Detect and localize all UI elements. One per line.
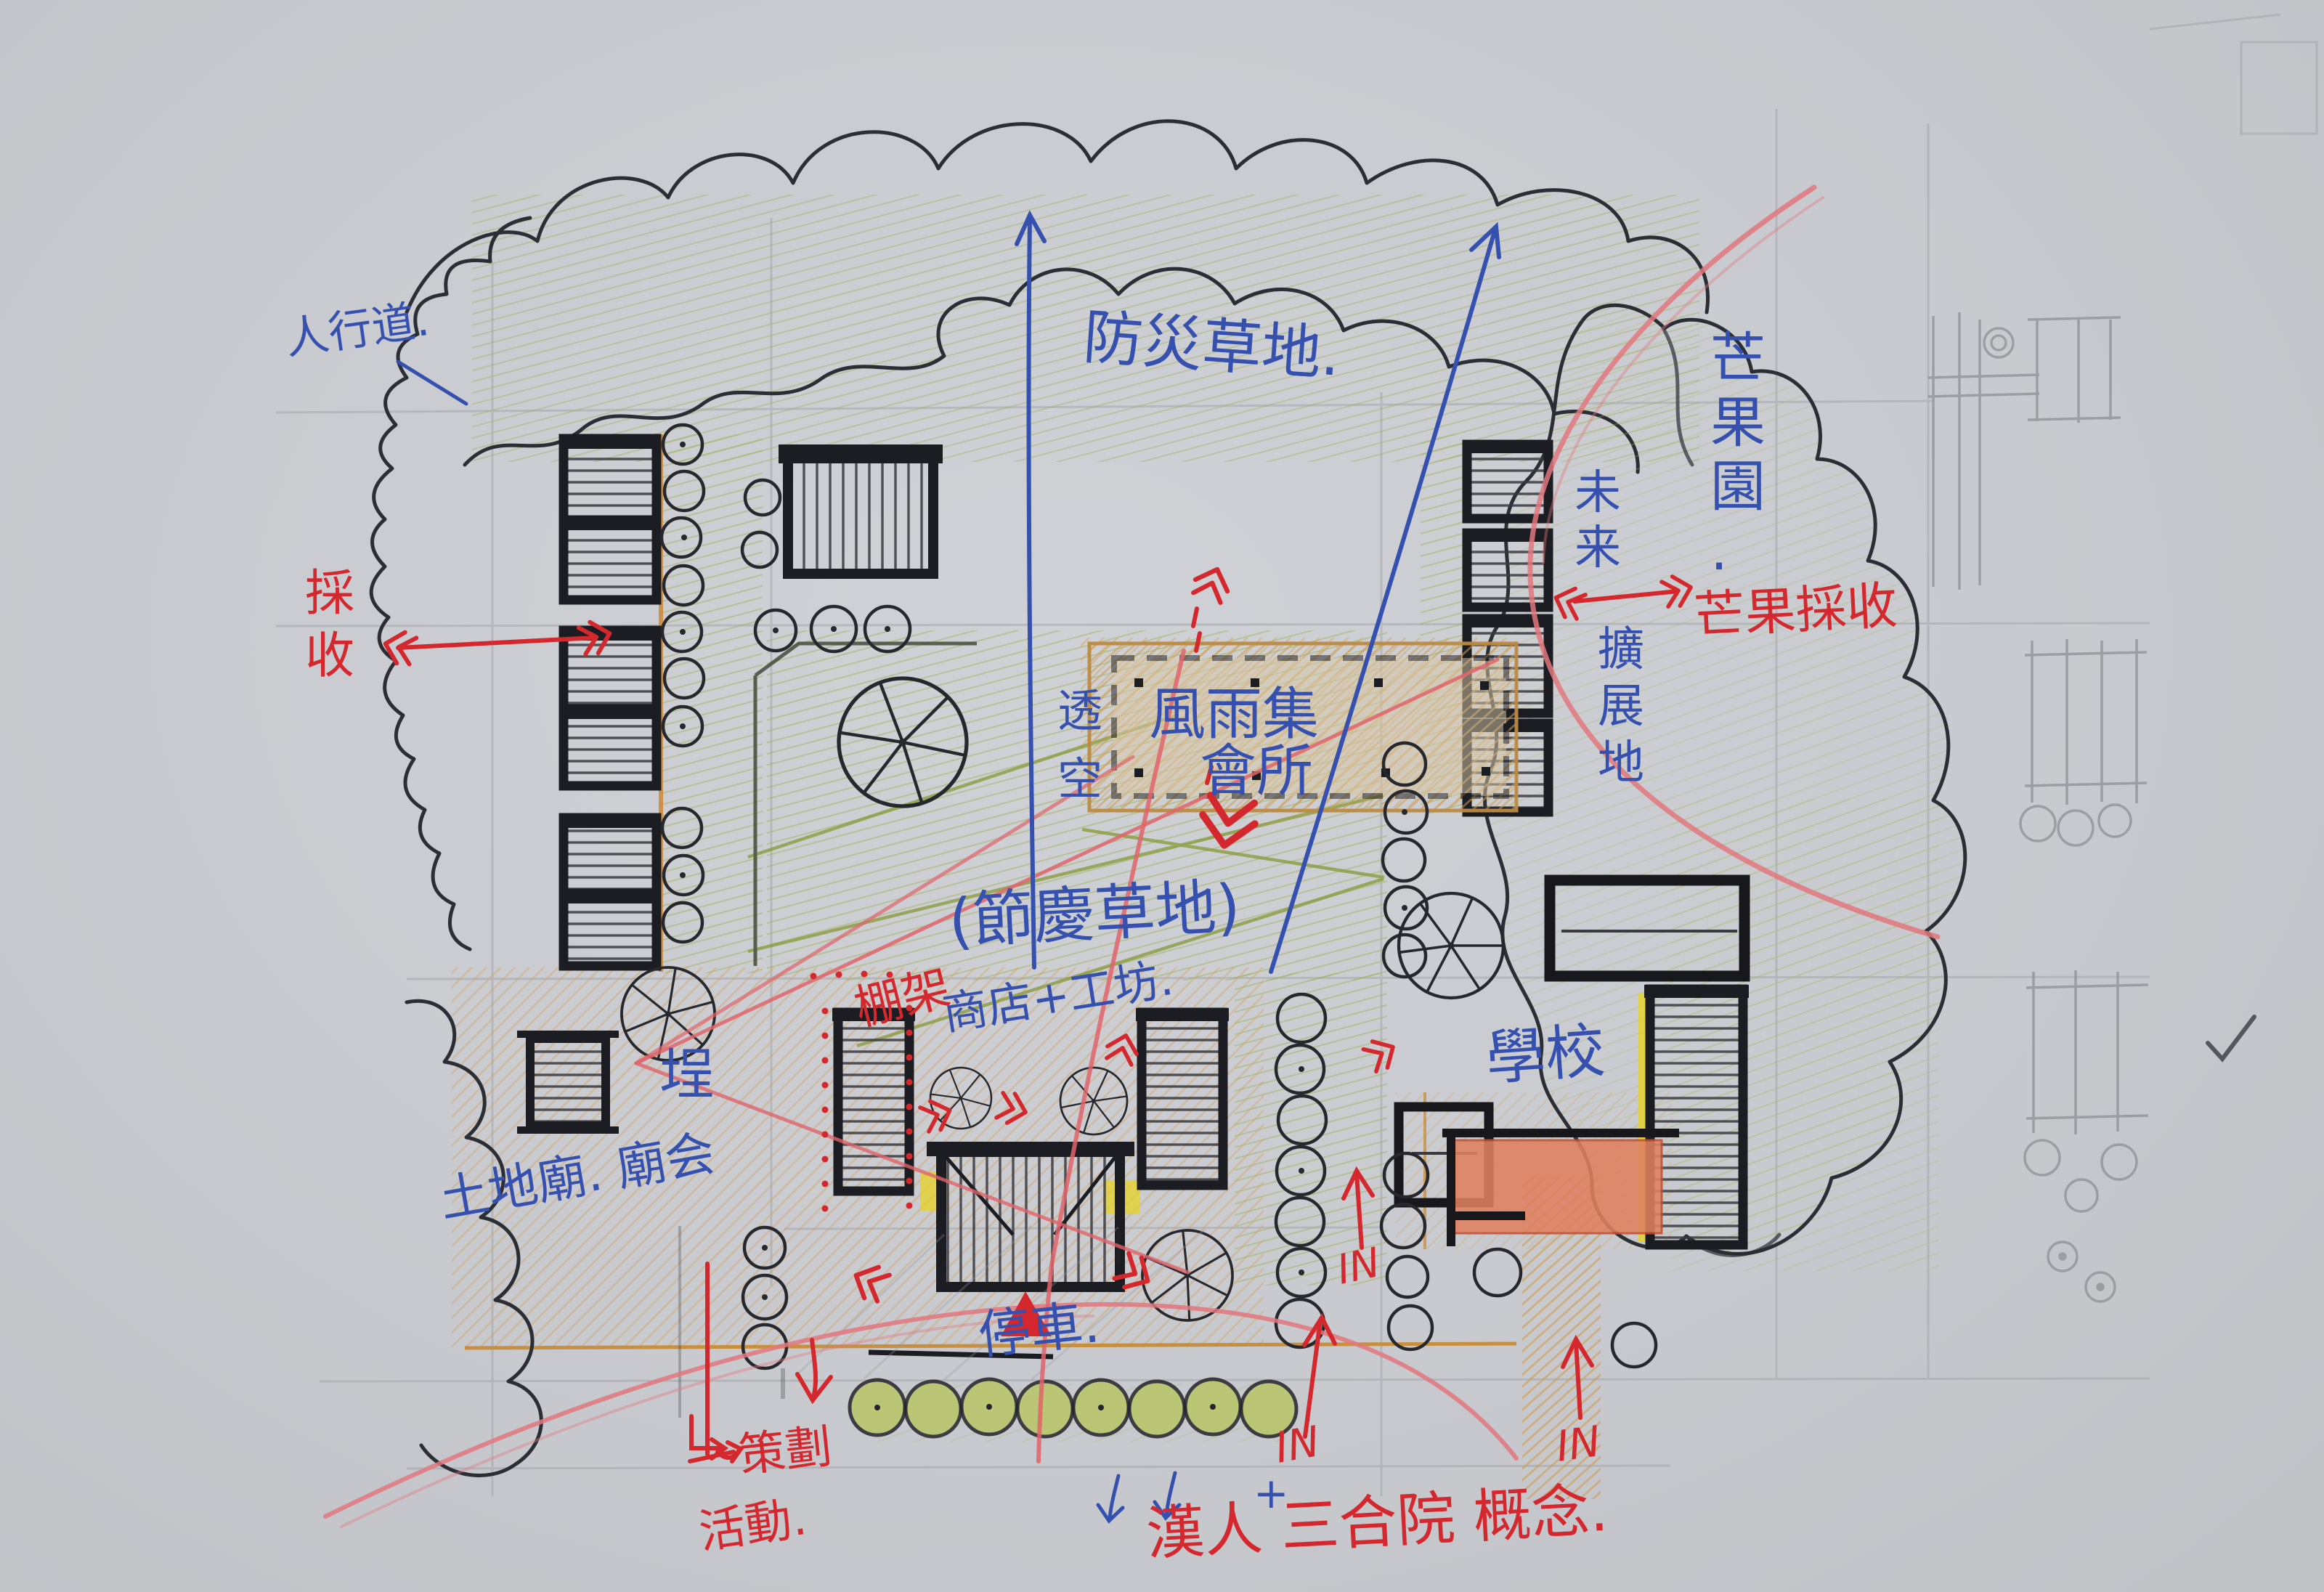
label-hall-2: 會所 <box>1200 739 1313 804</box>
top-middle-building <box>779 444 943 574</box>
label-plan-2: 活動. <box>696 1492 810 1560</box>
label-hall-1: 風雨集 <box>1149 682 1319 747</box>
label-courtyard: 埕 <box>659 1042 715 1107</box>
label-expansion: 擴展地 <box>1598 623 1644 790</box>
label-plus: + <box>1254 1469 1289 1518</box>
label-plan-1: 策劃 <box>736 1420 834 1483</box>
label-mango-harvest: 芒果採收 <box>1693 575 1899 646</box>
site-plan-sketch: 人行道. 防災草地. 採收 芒果採收 芒果園. 未来 擴展地 透空 風雨集 會所… <box>0 0 2324 1592</box>
label-han-concept: 漢人 三合院 概念. <box>1145 1477 1609 1568</box>
label-festival-lawn: (節慶草地) <box>947 871 1242 957</box>
label-in-left: IN <box>1272 1416 1323 1472</box>
checkmark <box>2208 1017 2254 1059</box>
left-building-row <box>559 434 661 966</box>
margin-detail-sketches <box>1928 312 2148 1301</box>
label-in-right: IN <box>1553 1416 1603 1471</box>
label-school: 學校 <box>1484 1017 1607 1094</box>
earth-temple-building <box>517 1034 619 1130</box>
label-sidewalk: 人行道. <box>282 295 432 365</box>
label-parking: 停車. <box>975 1293 1102 1366</box>
